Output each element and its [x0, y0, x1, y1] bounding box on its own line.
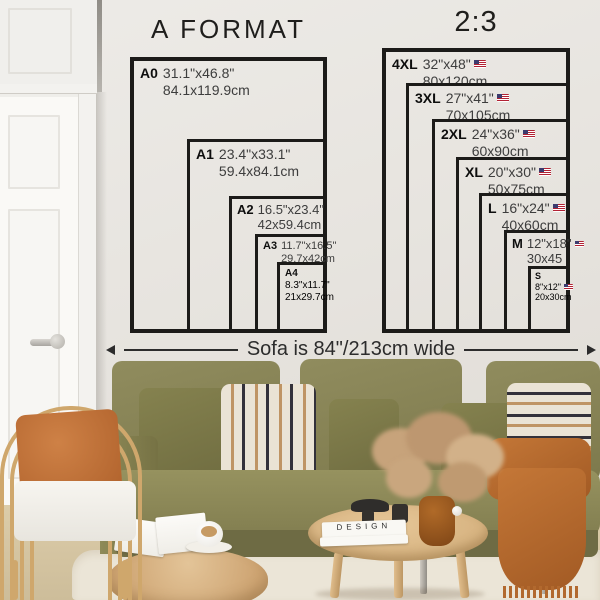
- chair-leg: [122, 560, 128, 600]
- table-leg: [394, 558, 403, 598]
- size-inches: 8.3"x11.7": [285, 280, 324, 292]
- us-flag-icon: [564, 284, 573, 290]
- size-name: L: [488, 200, 497, 233]
- book-title: DESIGN: [322, 520, 406, 534]
- chart-title-2-3: 2:3: [382, 6, 570, 39]
- sofa-width-label: Sofa is 84"/213cm wide: [247, 338, 455, 361]
- size-box-a4: A4 8.3"x11.7"21x29.7cm: [277, 262, 327, 333]
- throw-fringe: [503, 586, 581, 598]
- us-flag-icon: [474, 60, 486, 68]
- size-name: A2: [237, 202, 254, 233]
- door-frame-top: [0, 84, 97, 94]
- size-inches: 11.7"x16.5": [281, 240, 336, 253]
- glass-vase: [419, 496, 455, 546]
- chair-leg: [12, 560, 18, 600]
- size-inches: 12"x18": [527, 236, 572, 251]
- size-name: S: [535, 271, 567, 282]
- size-inches: 20"x30": [488, 164, 536, 181]
- arrow-line: [464, 349, 578, 351]
- size-name: A1: [196, 146, 214, 179]
- size-name: A3: [263, 240, 277, 266]
- size-inches: 16"x24": [502, 200, 550, 217]
- striped-pillow: [221, 384, 316, 483]
- coffee: [201, 526, 217, 537]
- us-flag-icon: [575, 241, 584, 247]
- sofa-width-annotation: Sofa is 84"/213cm wide: [106, 338, 596, 361]
- size-cm: 21x29.7cm: [285, 292, 324, 304]
- size-guide-image: DESIGN A FORMAT A0 31.1"x46.8"84.1x119.9…: [0, 0, 600, 600]
- arrow-left-icon: [106, 345, 115, 355]
- size-name: A4: [285, 268, 324, 280]
- size-cm: 20x30cm: [535, 292, 567, 303]
- door-handle-rosette: [50, 334, 65, 349]
- wall-panel: [0, 0, 97, 92]
- size-inches: 23.4"x33.1": [219, 146, 299, 163]
- us-flag-icon: [523, 130, 535, 138]
- size-inches: 31.1"x46.8": [163, 65, 250, 82]
- size-inches: 24"x36": [472, 126, 520, 143]
- size-cm: 59.4x84.1cm: [219, 163, 299, 180]
- dried-flowers: [386, 458, 432, 498]
- size-inches: 27"x41": [446, 90, 494, 107]
- size-cm: 30x45: [527, 251, 584, 266]
- us-flag-icon: [539, 168, 551, 176]
- throw-blanket-drape: [498, 468, 586, 590]
- arrow-line: [124, 349, 238, 351]
- us-flag-icon: [553, 204, 565, 212]
- chart-title-a-format: A FORMAT: [130, 14, 327, 45]
- us-flag-icon: [497, 94, 509, 102]
- arrow-right-icon: [587, 345, 596, 355]
- size-box-s: S 8"x12"20x30cm: [528, 266, 570, 333]
- wall-corner-shadow: [97, 0, 102, 92]
- decor-ball: [452, 506, 462, 516]
- size-name: M: [512, 236, 523, 267]
- chair-cushion: [14, 481, 136, 541]
- size-cm: 42x59.4cm: [258, 217, 324, 232]
- size-inches: 8"x12": [535, 282, 561, 293]
- size-inches: 16.5"x23.4": [258, 202, 324, 217]
- size-name: 2XL: [441, 126, 467, 159]
- size-inches: 32"x48": [423, 56, 471, 73]
- size-name: A0: [140, 65, 158, 98]
- size-cm: 84.1x119.9cm: [163, 82, 250, 99]
